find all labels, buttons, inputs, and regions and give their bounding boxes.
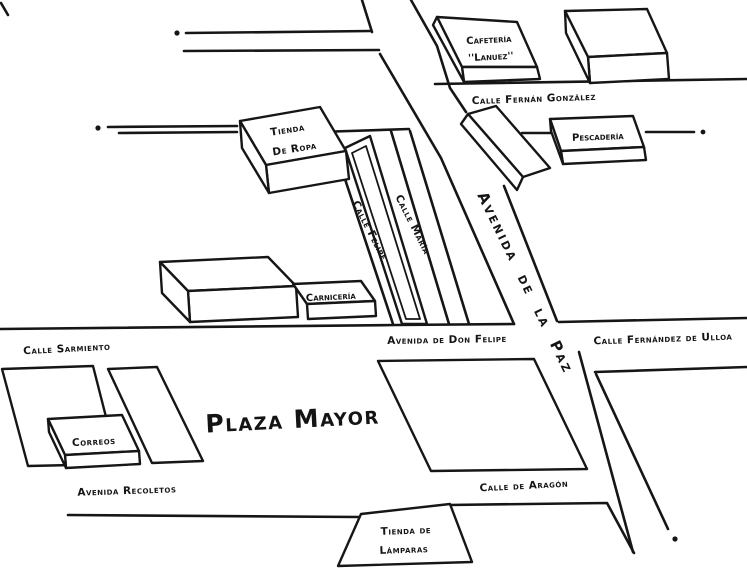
road-top-street-north-edge	[186, 31, 371, 33]
label-calle-de-aragon: Calle de Aragón	[479, 478, 568, 495]
label-tienda-lamparas-line1: Tienda de	[381, 524, 432, 538]
roads	[0, 0, 747, 553]
road-ropa-street-south-edge	[119, 132, 237, 133]
label-avenida-recoletos: Avenida Recoletos	[77, 483, 176, 498]
road-end-dot	[701, 130, 706, 135]
road-aragon-south-edge	[448, 503, 634, 553]
road-ropa-street-north-edge	[108, 126, 237, 127]
building-front-face	[561, 147, 646, 164]
road-end-dot	[672, 536, 677, 541]
label-avenida-de-la-paz: Avenida de la Paz	[473, 189, 577, 377]
label-calle-fernan-gonzalez: Calle Fernán González	[472, 91, 597, 107]
labels: Cafetería ''Lanuez'' Calle Fernán Gonzál…	[23, 34, 733, 557]
label-correos: Correos	[72, 435, 116, 449]
building-unlabeled-topright	[565, 9, 669, 83]
road-ulloa-north-edge	[559, 318, 747, 322]
road-edge-corner-tick	[1, 3, 8, 15]
plaza-mayor-block	[378, 359, 587, 471]
road-avenida-paz-left-edge	[362, 0, 372, 32]
map-canvas: Cafetería ''Lanuez'' Calle Fernán Gonzál…	[0, 0, 747, 569]
road-sarmiento-donfelipe-north-edge	[0, 324, 514, 329]
road-end-dot	[95, 125, 100, 130]
road-ulloa-south-edge	[595, 367, 747, 372]
hand-drawn-street-map: Cafetería ''Lanuez'' Calle Fernán Gonzál…	[0, 0, 747, 569]
building-front-face	[588, 53, 669, 83]
building-front-face	[65, 451, 140, 468]
building-unlabeled-left	[160, 257, 298, 322]
road-recoletos-south-edge	[68, 515, 359, 517]
label-calle-fernandez-ulloa: Calle Fernández de Ulloa	[593, 331, 732, 348]
building-front-face	[188, 286, 298, 322]
road-end-dot	[174, 30, 179, 35]
label-calle-sarmiento: Calle Sarmiento	[23, 341, 111, 358]
road-top-street-south-edge	[184, 50, 379, 51]
building-unlabeled-avenue	[461, 106, 550, 190]
building-cafeteria	[433, 17, 540, 82]
label-plaza-mayor: Plaza Mayor	[205, 400, 381, 438]
label-avenida-don-felipe: Avenida de Don Felipe	[387, 333, 507, 347]
label-tienda-lamparas-line2: Lámparas	[379, 543, 428, 557]
road-avenida-paz-lower-left-edge	[579, 352, 633, 552]
building-front-face	[462, 67, 540, 82]
label-pescaderia: Pescadería	[572, 131, 625, 144]
